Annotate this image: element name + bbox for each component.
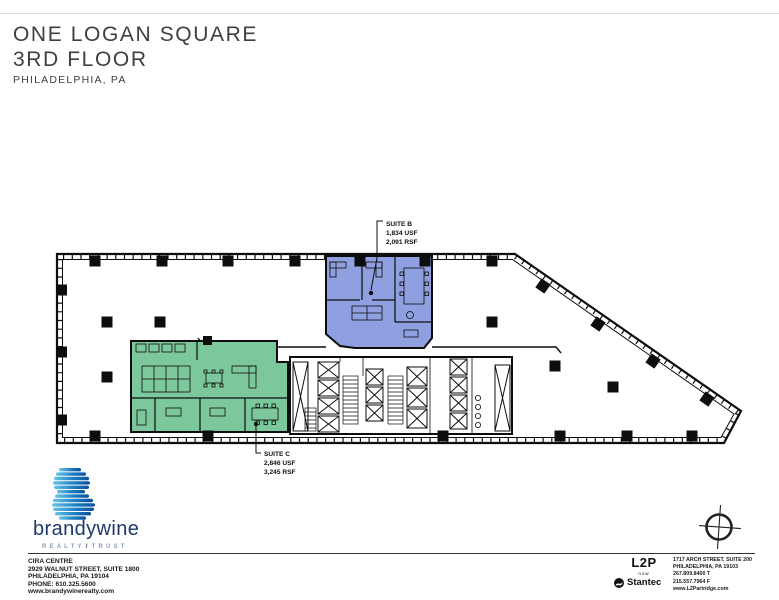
l2p-logo: L2P [620, 555, 668, 570]
suite-b-usf: 1,834 USF [386, 230, 418, 237]
arch-address-line: 1717 ARCH STREET, SUITE 200 [673, 557, 752, 564]
arch-address-line: 267.809.8400 T [673, 571, 752, 578]
architect-address: 1717 ARCH STREET, SUITE 200 PHILADELPHIA… [673, 557, 752, 593]
stantec-logo-row: Stantec [614, 577, 661, 588]
floor-plan: SUITE B 1,834 USF 2,091 RSF SUITE C 2,84… [0, 0, 779, 600]
address-line: PHILADELPHIA, PA 19104 [28, 573, 139, 581]
suite-b-area [326, 256, 432, 348]
suite-c-usf: 2,846 USF [264, 460, 296, 467]
tagline-slash: / [86, 544, 91, 550]
arch-website-link: www.L2Partridge.com [673, 586, 752, 593]
suite-b-region [326, 256, 432, 348]
address-line: PHONE: 610.325.5600 [28, 581, 139, 589]
brandywine-logo [50, 468, 100, 520]
brandywine-tagline: REALTY/TRUST [42, 544, 128, 550]
tagline-trust: TRUST [92, 544, 128, 550]
brandywine-wordmark: brandywine [33, 518, 139, 541]
address-line: CIRA CENTRE [28, 558, 139, 566]
website-link: www.brandywinerealty.com [28, 588, 139, 596]
tagline-realty: REALTY [42, 544, 85, 550]
core-region [290, 357, 512, 434]
suite-c-name: SUITE C [264, 451, 290, 458]
l2p-logo-block: L2P now [620, 555, 668, 576]
suite-b-name: SUITE B [386, 221, 412, 228]
stantec-icon [614, 578, 624, 588]
suite-c-rsf: 3,245 RSF [264, 469, 296, 476]
footer-rule [28, 553, 755, 554]
arch-address-line: 215.557.7964 F [673, 579, 752, 586]
address-line: 2929 WALNUT STREET, SUITE 1800 [28, 566, 139, 574]
suite-c-region [131, 341, 288, 432]
suite-b-rsf: 2,091 RSF [386, 239, 418, 246]
compass-icon [698, 504, 743, 551]
brandywine-address: CIRA CENTRE 2929 WALNUT STREET, SUITE 18… [28, 558, 139, 596]
arch-address-line: PHILADELPHIA, PA 19103 [673, 564, 752, 571]
stantec-wordmark: Stantec [627, 577, 661, 588]
l2p-sub-label: now [620, 571, 668, 576]
